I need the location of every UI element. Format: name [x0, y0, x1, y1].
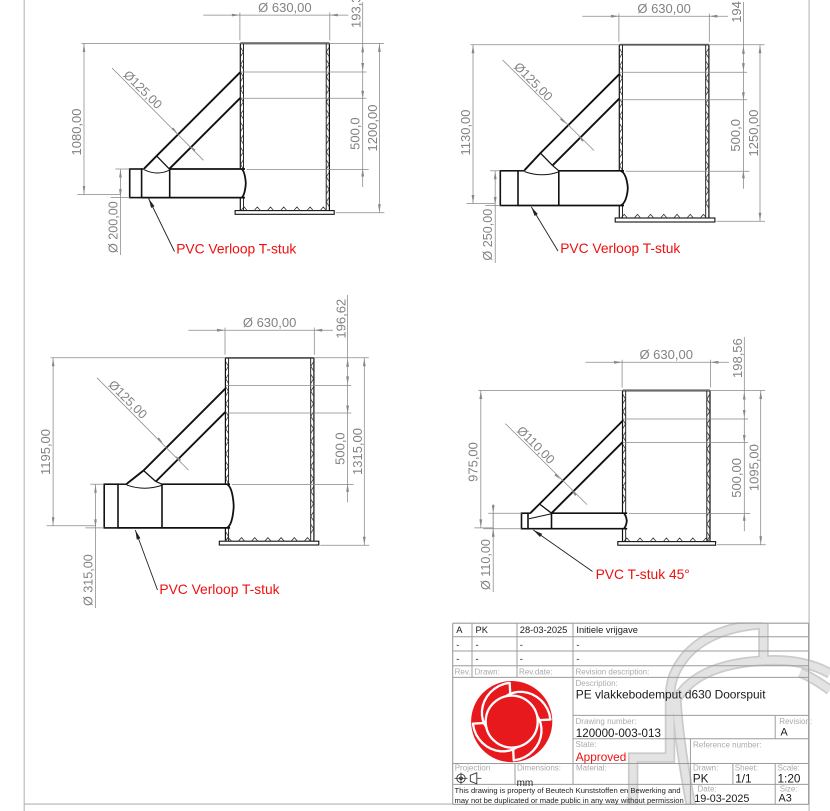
svg-text:1/1: 1/1 [735, 771, 751, 785]
svg-text:Dimensions:: Dimensions: [517, 764, 561, 773]
svg-text:194,41: 194,41 [729, 0, 744, 23]
svg-text:PK: PK [693, 771, 709, 785]
svg-text:A3: A3 [779, 793, 792, 805]
svg-text:A: A [456, 625, 463, 635]
svg-text:1095,00: 1095,00 [747, 444, 762, 491]
svg-text:PE vlakkebodemput d630 Doorspu: PE vlakkebodemput d630 Doorspuit [576, 688, 766, 702]
svg-text:1195,00: 1195,00 [38, 429, 53, 475]
svg-text:120000-003-013: 120000-003-013 [576, 727, 661, 740]
svg-text:Projection: Projection [455, 764, 491, 773]
svg-text:PK: PK [476, 625, 489, 635]
svg-text:-: - [576, 640, 579, 650]
svg-text:Ø 630,00: Ø 630,00 [637, 1, 691, 16]
svg-text:PVC T-stuk 45°: PVC T-stuk 45° [596, 567, 690, 582]
svg-text:Reference number:: Reference number: [693, 741, 761, 750]
svg-text:State:: State: [576, 740, 597, 749]
svg-text:1250,00: 1250,00 [746, 110, 761, 157]
svg-text:This drawing is property of Be: This drawing is property of Beutech Kuns… [455, 786, 681, 795]
svg-text:1:20: 1:20 [778, 771, 801, 785]
svg-text:Rev.date:: Rev.date: [519, 668, 553, 677]
svg-text:196,62: 196,62 [333, 299, 348, 339]
svg-text:-: - [476, 640, 479, 650]
svg-text:Approved: Approved [576, 750, 627, 764]
svg-text:500,00: 500,00 [729, 458, 744, 498]
svg-text:A: A [781, 727, 789, 739]
svg-text:Ø 630,00: Ø 630,00 [639, 347, 693, 362]
svg-text:Initiele vrijgave: Initiele vrijgave [576, 625, 638, 635]
svg-text:Ø 250,00: Ø 250,00 [481, 209, 495, 261]
svg-text:500,0: 500,0 [728, 119, 743, 152]
svg-text:Ø 630,00: Ø 630,00 [258, 0, 312, 15]
svg-text:Ø 200,00: Ø 200,00 [106, 201, 120, 253]
svg-text:1315,00: 1315,00 [350, 428, 365, 475]
svg-text:-: - [476, 654, 479, 664]
svg-text:PVC Verloop T-stuk: PVC Verloop T-stuk [176, 242, 296, 257]
svg-text:-: - [456, 640, 459, 650]
svg-text:1080,00: 1080,00 [69, 109, 84, 156]
svg-text:1130,00: 1130,00 [458, 109, 473, 155]
svg-text:Revision description:: Revision description: [576, 668, 650, 677]
svg-text:500,0: 500,0 [348, 117, 363, 150]
svg-text:28-03-2025: 28-03-2025 [520, 625, 568, 635]
svg-text:PVC Verloop T-stuk: PVC Verloop T-stuk [159, 582, 279, 597]
svg-text:500,0: 500,0 [332, 432, 347, 465]
svg-text:198,56: 198,56 [730, 338, 745, 378]
svg-text:-: - [576, 654, 579, 664]
svg-text:Drawn:: Drawn: [475, 668, 500, 677]
svg-text:193,35: 193,35 [349, 0, 364, 28]
svg-text:may not be duplicated or made: may not be duplicated or made public in … [455, 796, 684, 805]
svg-text:Drawing number:: Drawing number: [576, 717, 637, 726]
svg-text:Ø 630,00: Ø 630,00 [243, 315, 297, 330]
svg-text:975,00: 975,00 [466, 442, 481, 482]
svg-text:-: - [456, 654, 459, 664]
svg-text:Material:: Material: [576, 764, 607, 773]
svg-text:Rev.:: Rev.: [455, 668, 473, 677]
svg-text:Revision:: Revision: [779, 717, 812, 726]
svg-text:-: - [520, 654, 523, 664]
svg-text:19-03-2025: 19-03-2025 [694, 793, 749, 805]
svg-text:-: - [520, 640, 523, 650]
svg-text:1200,00: 1200,00 [365, 105, 380, 152]
svg-text:PVC Verloop T-stuk: PVC Verloop T-stuk [560, 241, 680, 256]
svg-text:Ø 110,00: Ø 110,00 [479, 539, 493, 590]
svg-text:Ø 315,00: Ø 315,00 [82, 554, 96, 606]
